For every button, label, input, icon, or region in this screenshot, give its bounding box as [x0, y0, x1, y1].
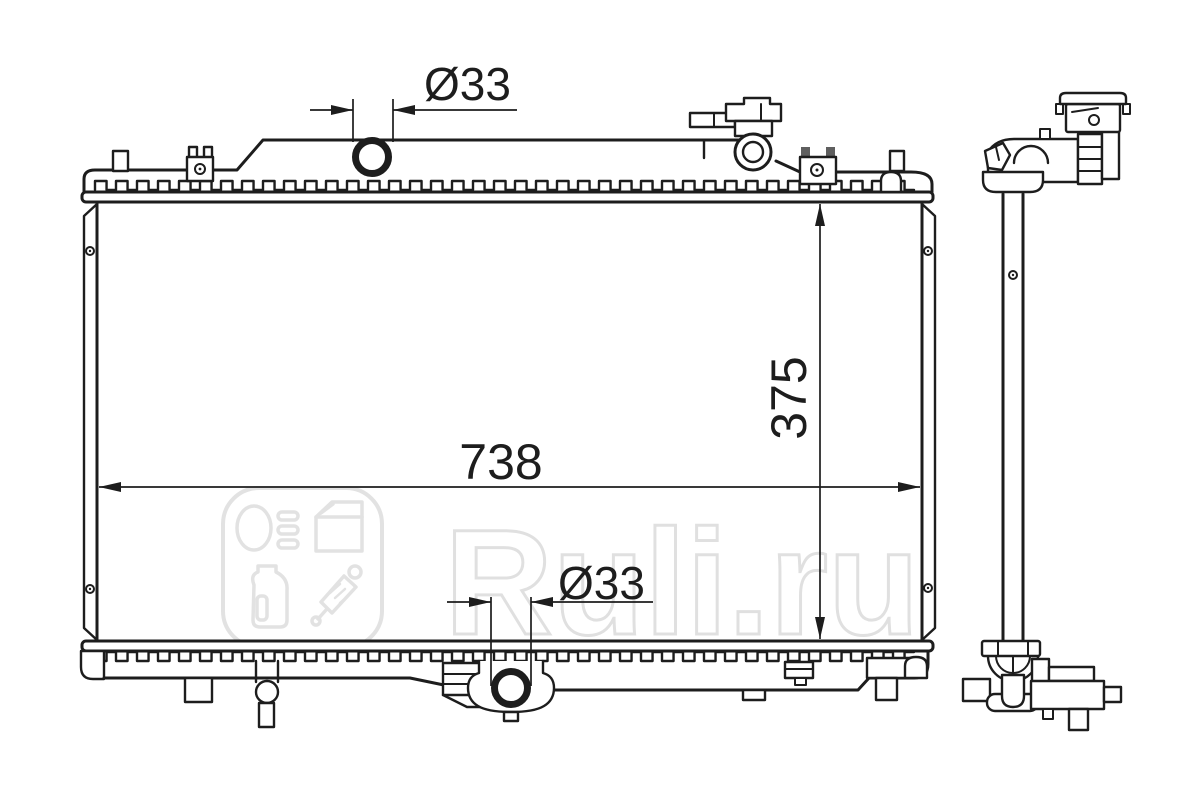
- side-bottom-tongue: [1002, 675, 1024, 707]
- shock-absorber-icon: [312, 566, 361, 625]
- top-crimp-serration: [95, 181, 914, 190]
- bottom-bracket-b: [785, 662, 813, 685]
- top-right-mount-bracket: [800, 147, 836, 184]
- top-left-tab: [113, 151, 128, 171]
- bottom-right-hump: [905, 657, 927, 678]
- dimension-top-pipe: Ø33: [310, 58, 517, 142]
- radiator-technical-drawing: Ruli.ru: [0, 0, 1200, 800]
- drain-plug: [256, 661, 278, 727]
- side-outlet-body: [1031, 681, 1104, 709]
- top-right-tab: [890, 151, 904, 171]
- dim-label-top-pipe: Ø33: [424, 58, 511, 110]
- top-right-hump: [881, 172, 901, 192]
- side-top-assembly: [983, 93, 1130, 192]
- dimension-width: 738: [99, 434, 920, 492]
- filler-neck: [690, 98, 781, 170]
- top-inlet-pipe: [356, 141, 389, 174]
- right-side-bracket: [922, 204, 935, 640]
- oil-canister-icon: [253, 566, 287, 627]
- top-left-mount-bracket: [187, 147, 213, 181]
- top-header-bar: [82, 192, 933, 202]
- bottom-left-hook: [81, 651, 104, 679]
- bottom-tank: [81, 651, 928, 727]
- top-tank: [84, 98, 932, 192]
- bottom-outlet-pipe: [468, 661, 554, 721]
- bottom-step-tab: [743, 690, 765, 700]
- dim-label-bottom-pipe: Ø33: [558, 557, 645, 609]
- side-view: [963, 93, 1130, 730]
- left-side-bracket: [84, 204, 97, 640]
- dim-label-width: 738: [459, 434, 542, 490]
- bottom-bracket-c: [867, 658, 910, 700]
- radiator-cap: [726, 98, 781, 121]
- side-radiator-cap: [1056, 93, 1130, 132]
- bottom-header-bar: [82, 641, 933, 651]
- side-top-flange: [983, 172, 1043, 192]
- side-bottom-assembly: [963, 641, 1121, 730]
- headlight-icon: [237, 506, 298, 550]
- side-core-profile: [1003, 194, 1023, 643]
- drawing-canvas: Ruli.ru: [0, 0, 1200, 800]
- side-bottom-flange: [982, 641, 1040, 656]
- car-door-icon: [316, 502, 362, 551]
- dim-label-height: 375: [761, 356, 817, 439]
- bottom-peg-left: [185, 678, 212, 702]
